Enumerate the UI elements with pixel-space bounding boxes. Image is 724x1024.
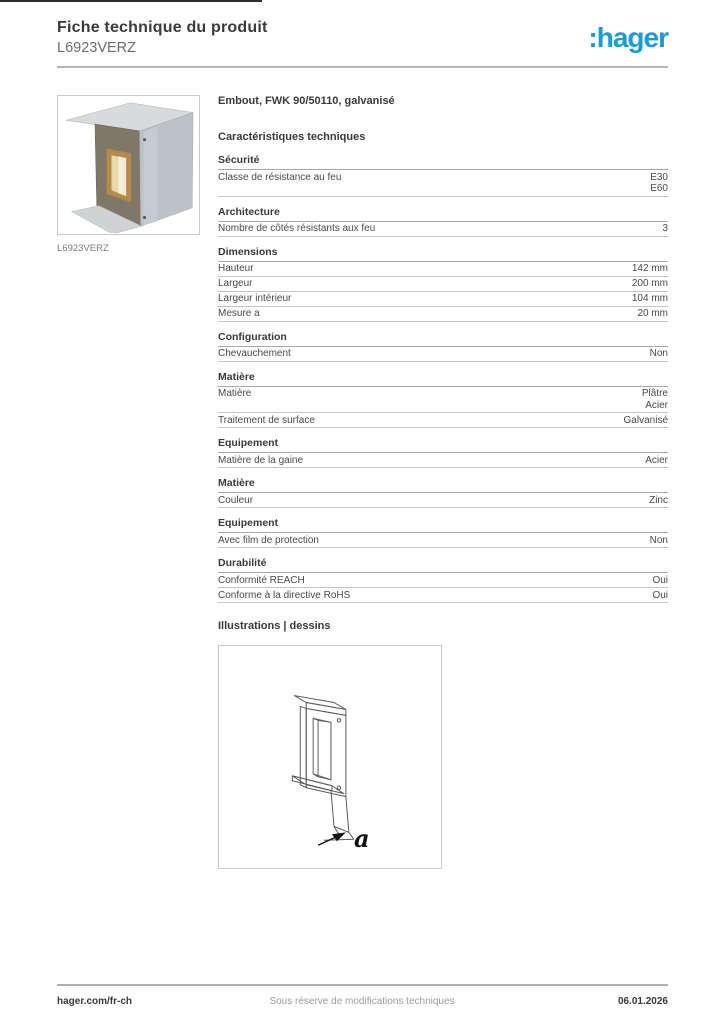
spec-section-title: Matière (218, 371, 668, 387)
spec-value: Non (650, 535, 668, 547)
spec-value: Non (650, 348, 668, 360)
spec-row: Largeur200 mm (218, 277, 668, 292)
spec-section: SécuritéClasse de résistance au feuE30E6… (218, 154, 668, 197)
spec-column: Embout, FWK 90/50110, galvanisé Caractér… (218, 88, 668, 869)
product-photo-caption: L6923VERZ (57, 243, 109, 254)
spec-label: Traitement de surface (218, 415, 315, 427)
spec-value: Acier (645, 455, 668, 467)
product-title: Embout, FWK 90/50110, galvanisé (218, 88, 668, 108)
spec-label: Hauteur (218, 263, 254, 275)
characteristics-heading: Caractéristiques techniques (218, 131, 668, 144)
scan-edge-artifact (0, 0, 262, 2)
footer-date: 06.01.2026 (618, 996, 668, 1007)
spec-value: 200 mm (632, 278, 668, 290)
spec-label: Largeur (218, 278, 252, 290)
spec-section: EquipementAvec film de protectionNon (218, 517, 668, 548)
spec-row: Conformité REACHOui (218, 573, 668, 588)
spec-label: Largeur intérieur (218, 293, 291, 305)
spec-section: EquipementMatière de la gaineAcier (218, 437, 668, 468)
spec-section: DimensionsHauteur142 mmLargeur200 mmLarg… (218, 246, 668, 322)
spec-row: Avec film de protectionNon (218, 533, 668, 548)
spec-section-title: Architecture (218, 206, 668, 222)
spec-row: Largeur intérieur104 mm (218, 292, 668, 307)
spec-row: Conforme à la directive RoHSOui (218, 588, 668, 603)
spec-label: Matière de la gaine (218, 455, 303, 467)
spec-value: E30E60 (650, 172, 668, 195)
product-photo (60, 97, 198, 233)
spec-section: MatièreCouleurZinc (218, 477, 668, 508)
spec-section-title: Equipement (218, 437, 668, 453)
product-photo-frame (57, 95, 200, 235)
spec-section: DurabilitéConformité REACHOuiConforme à … (218, 557, 668, 603)
illustration-frame: a (218, 645, 442, 869)
spec-label: Chevauchement (218, 348, 291, 360)
spec-row: ChevauchementNon (218, 347, 668, 362)
product-reference: L6923VERZ (57, 40, 136, 56)
spec-section-title: Equipement (218, 517, 668, 533)
spec-section: MatièreMatièrePlâtreAcierTraitement de s… (218, 371, 668, 429)
spec-section-title: Matière (218, 477, 668, 493)
spec-value: Galvanisé (624, 415, 668, 427)
hager-logo: :hager (588, 22, 668, 54)
spec-section-title: Configuration (218, 331, 668, 347)
spec-label: Mesure a (218, 308, 260, 320)
spec-value: PlâtreAcier (642, 388, 668, 411)
spec-section-title: Sécurité (218, 154, 668, 170)
spec-row: CouleurZinc (218, 493, 668, 508)
spec-value: 104 mm (632, 293, 668, 305)
end-cap-isometric-drawing (219, 646, 441, 868)
spec-value: 20 mm (637, 308, 668, 320)
footer-divider (57, 984, 668, 986)
spec-label: Avec film de protection (218, 535, 319, 547)
spec-row: Hauteur142 mm (218, 262, 668, 277)
spec-row: Traitement de surfaceGalvanisé (218, 413, 668, 428)
spec-label: Couleur (218, 495, 253, 507)
spec-row: Nombre de côtés résistants aux feu3 (218, 222, 668, 237)
spec-label: Classe de résistance au feu (218, 172, 341, 184)
spec-label: Conformité REACH (218, 575, 305, 587)
footer-website: hager.com/fr-ch (57, 996, 132, 1007)
spec-row: Mesure a20 mm (218, 307, 668, 322)
spec-sections: SécuritéClasse de résistance au feuE30E6… (218, 154, 668, 603)
spec-value: Zinc (649, 495, 668, 507)
header-divider (57, 66, 668, 68)
dimension-a-label: a (354, 824, 370, 853)
spec-value: 142 mm (632, 263, 668, 275)
spec-section-title: Dimensions (218, 246, 668, 262)
illustrations-heading: Illustrations | dessins (218, 620, 668, 633)
spec-value: Oui (652, 575, 668, 587)
spec-value: Oui (652, 590, 668, 602)
spec-row: Classe de résistance au feuE30E60 (218, 170, 668, 197)
spec-label: Matière (218, 388, 251, 400)
spec-label: Conforme à la directive RoHS (218, 590, 350, 602)
spec-row: MatièrePlâtreAcier (218, 387, 668, 414)
spec-label: Nombre de côtés résistants aux feu (218, 223, 375, 235)
spec-row: Matière de la gaineAcier (218, 453, 668, 468)
spec-section: ConfigurationChevauchementNon (218, 331, 668, 362)
spec-section-title: Durabilité (218, 557, 668, 573)
page-title: Fiche technique du produit (57, 19, 268, 37)
spec-value: 3 (662, 223, 668, 235)
spec-section: ArchitectureNombre de côtés résistants a… (218, 206, 668, 237)
